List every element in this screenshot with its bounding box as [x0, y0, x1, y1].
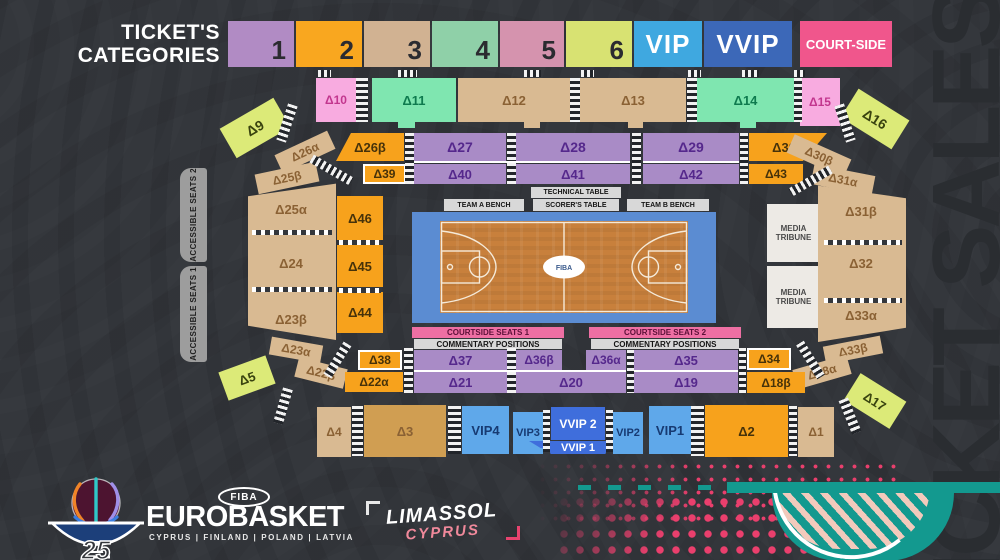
- section-Δ39[interactable]: Δ39: [363, 164, 406, 184]
- section-Δ32[interactable]: Δ32: [828, 254, 894, 272]
- section-tab: [740, 120, 756, 128]
- section-Δ1[interactable]: Δ1: [798, 407, 834, 457]
- stairway-hatch: [742, 70, 759, 77]
- stairway-hatch: [448, 406, 461, 454]
- section-Δ12[interactable]: Δ12: [458, 78, 570, 122]
- stairway-hatch: [632, 133, 641, 184]
- section-Δ21[interactable]: Δ21: [414, 372, 507, 393]
- stairway-hatch: [688, 70, 701, 77]
- section-Δ14[interactable]: Δ14: [697, 78, 794, 122]
- section-VIP4[interactable]: VIP4: [462, 406, 509, 454]
- section-Δ10[interactable]: Δ10: [316, 78, 356, 122]
- commentary-positions-2: COMMENTARY POSITIONS: [591, 339, 739, 349]
- legend-item-5: 5: [500, 21, 564, 67]
- section-Δ19[interactable]: Δ19: [634, 372, 738, 393]
- stairway-hatch: [398, 70, 417, 77]
- center-logo-text: FIBA: [556, 265, 572, 272]
- legend-item-2: 2: [296, 21, 362, 67]
- section-Δ27[interactable]: Δ27: [414, 133, 506, 161]
- section-Δ35[interactable]: Δ35: [634, 350, 738, 370]
- accessible-seats-2[interactable]: ACCESSIBLE SEATS 2: [180, 168, 207, 262]
- section-Δ29[interactable]: Δ29: [643, 133, 739, 161]
- court-lines-icon: FIBA: [440, 221, 688, 313]
- section-tab: [524, 120, 540, 128]
- stairway-hatch: [570, 78, 580, 122]
- section-Δ34[interactable]: Δ34: [747, 348, 791, 370]
- section-Δ37[interactable]: Δ37: [414, 350, 507, 370]
- section-VIP1[interactable]: VIP1: [649, 406, 691, 454]
- section-Δ3[interactable]: Δ3: [364, 405, 446, 457]
- stairway-hatch: [273, 387, 293, 424]
- row-divider: [414, 370, 626, 372]
- row-divider: [643, 161, 739, 163]
- stairway-hatch: [739, 348, 746, 393]
- row-divider: [414, 161, 630, 163]
- technical-table: TECHNICAL TABLE: [531, 187, 621, 198]
- legend-item-6: 6: [566, 21, 632, 67]
- section-Δ38[interactable]: Δ38: [358, 350, 402, 370]
- section-Δ40[interactable]: Δ40: [414, 164, 506, 184]
- stairway-hatch: [794, 78, 802, 122]
- stairway-hatch: [627, 350, 634, 393]
- section-Δ36β[interactable]: Δ36β: [516, 350, 562, 370]
- section-Δ26β[interactable]: Δ26β: [336, 133, 404, 161]
- section-Δ28[interactable]: Δ28: [516, 133, 630, 161]
- section-Δ15[interactable]: Δ15: [800, 78, 840, 126]
- legend-title: TICKET'S CATEGORIES: [0, 21, 220, 67]
- section-Δ33α[interactable]: Δ33α: [828, 306, 894, 324]
- dashed-separator: [824, 240, 902, 245]
- media-tribune-1[interactable]: MEDIA TRIBUNE: [767, 204, 820, 262]
- section-Δ41[interactable]: Δ41: [516, 164, 630, 184]
- section-Δ24[interactable]: Δ24: [258, 254, 324, 272]
- section-Δ46[interactable]: Δ46: [337, 196, 383, 240]
- section-Δ25α[interactable]: Δ25α: [258, 200, 324, 218]
- scorers-table: SCORER'S TABLE: [533, 199, 619, 211]
- legend-title-line2: CATEGORIES: [0, 44, 220, 67]
- legend-item-vvip: VVIP: [704, 21, 792, 67]
- stairway-hatch: [524, 70, 541, 77]
- section-Δ4[interactable]: Δ4: [317, 407, 351, 457]
- dashed-separator: [252, 230, 332, 235]
- stairway-hatch: [507, 133, 516, 184]
- section-Δ43[interactable]: Δ43: [749, 164, 803, 184]
- media-tribune-2[interactable]: MEDIA TRIBUNE: [767, 266, 820, 328]
- section-Δ31β[interactable]: Δ31β: [828, 202, 894, 220]
- stairway-hatch: [318, 70, 331, 77]
- legend-items: 123456VIPVVIPCOURT-SIDE: [228, 21, 894, 67]
- arena-map: ACCESSIBLE SEATS 2 ACCESSIBLE SEATS 1 TE…: [0, 0, 1000, 560]
- legend-item-court-side: COURT-SIDE: [800, 21, 892, 67]
- section-Δ13[interactable]: Δ13: [580, 78, 686, 122]
- basketball-court: FIBA: [440, 221, 688, 313]
- courtside-seats-1[interactable]: COURTSIDE SEATS 1: [412, 327, 564, 338]
- stairway-hatch: [687, 78, 697, 122]
- section-Δ42[interactable]: Δ42: [643, 164, 739, 184]
- stairway-hatch: [740, 133, 748, 184]
- commentary-positions-1: COMMENTARY POSITIONS: [414, 339, 562, 349]
- section-VIP2[interactable]: VIP2: [613, 412, 643, 454]
- section-tab: [628, 120, 643, 128]
- legend-item-vip: VIP: [634, 21, 702, 67]
- dashed-separator: [339, 240, 381, 245]
- section-Δ2[interactable]: Δ2: [705, 405, 788, 457]
- dashed-separator: [824, 298, 902, 303]
- stairway-hatch: [356, 78, 368, 122]
- section-Δ20[interactable]: Δ20: [516, 372, 626, 393]
- section-Δ5[interactable]: Δ5: [218, 355, 275, 400]
- section-Δ45[interactable]: Δ45: [337, 245, 383, 287]
- section-Δ44[interactable]: Δ44: [337, 292, 383, 333]
- section-Δ11[interactable]: Δ11: [372, 78, 456, 122]
- dashed-separator: [339, 288, 381, 293]
- section-Δ22α[interactable]: Δ22α: [345, 372, 403, 392]
- ticket-categories-arena-map: TICKET SALES TICKET'S CATEGORIES 123456V…: [0, 0, 1000, 560]
- stairway-hatch: [352, 406, 363, 456]
- section-VIP3[interactable]: VIP3: [513, 412, 543, 454]
- stairway-hatch: [543, 410, 550, 452]
- stairway-hatch: [404, 348, 413, 393]
- stairway-hatch: [581, 70, 594, 77]
- section-tab: [398, 120, 415, 128]
- team-b-bench: TEAM B BENCH: [627, 199, 709, 211]
- legend-item-3: 3: [364, 21, 430, 67]
- courtside-seats-2[interactable]: COURTSIDE SEATS 2: [589, 327, 741, 338]
- section-Δ18β[interactable]: Δ18β: [747, 372, 805, 393]
- team-a-bench: TEAM A BENCH: [444, 199, 524, 211]
- legend-item-1: 1: [228, 21, 294, 67]
- stairway-hatch: [789, 406, 797, 456]
- section-Δ23β[interactable]: Δ23β: [258, 310, 324, 328]
- dashed-separator: [252, 287, 332, 292]
- stairway-hatch: [405, 133, 414, 184]
- legend-title-line1: TICKET'S: [0, 21, 220, 44]
- section-Δ23α[interactable]: Δ23α: [269, 337, 323, 364]
- stairway-hatch: [606, 410, 613, 452]
- stairway-hatch: [794, 70, 805, 77]
- row-divider: [634, 370, 738, 372]
- accessible-seats-1[interactable]: ACCESSIBLE SEATS 1: [180, 266, 207, 362]
- legend-item-4: 4: [432, 21, 498, 67]
- section-VVIP 2[interactable]: VVIP 2: [551, 407, 605, 440]
- section-Δ36α[interactable]: Δ36α: [586, 350, 626, 370]
- stairway-hatch: [691, 406, 704, 456]
